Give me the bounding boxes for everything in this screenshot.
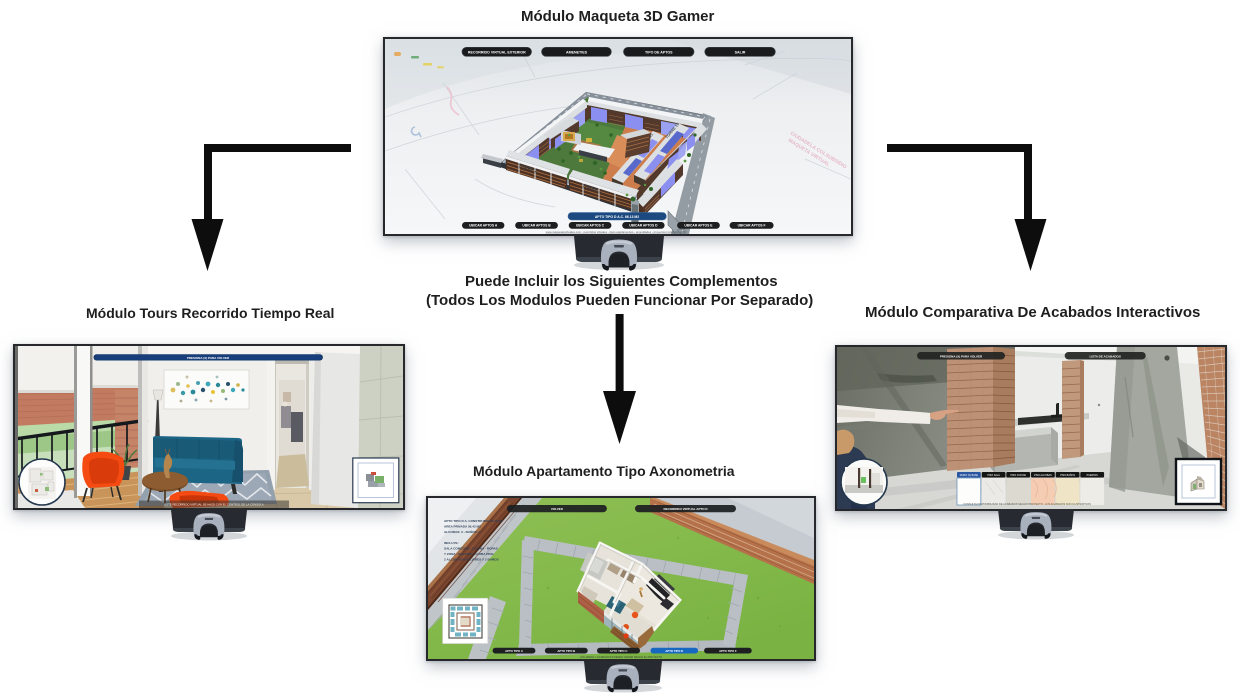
svg-text:www.maquetasvirtuales.com - re: www.maquetasvirtuales.com - recorridos v…: [546, 230, 687, 234]
svg-text:APTO TIPO F: APTO TIPO F: [719, 649, 737, 653]
svg-text:APTO TIPO B: APTO TIPO B: [557, 649, 575, 653]
svg-text:UBICAR APTOS F: UBICAR APTOS F: [738, 224, 766, 228]
svg-text:LISTA DE ACABADOS: LISTA DE ACABADOS: [1090, 354, 1121, 358]
svg-text:2 ALCOBAS AUXILIARES Y 2 BAÑOS: 2 ALCOBAS AUXILIARES Y 2 BAÑOS: [444, 557, 499, 562]
svg-text:INCLUYE:: INCLUYE:: [444, 541, 459, 545]
svg-text:RECORRIDO VIRTUAL APTO D: RECORRIDO VIRTUAL APTO D: [663, 507, 708, 511]
svg-text:APTO TIPO C: APTO TIPO C: [610, 649, 628, 653]
svg-text:Y ZONA - BALCON ALCOBA PPAL: Y ZONA - BALCON ALCOBA PPAL: [444, 552, 494, 556]
svg-text:PRESIONA (X) PARA VOLVER: PRESIONA (X) PARA VOLVER: [187, 356, 230, 360]
svg-text:AMENETIES: AMENETIES: [566, 50, 588, 54]
svg-text:UBICAR APTOS B: UBICAR APTOS B: [522, 224, 551, 228]
svg-text:APTO TIPO D: APTO TIPO D: [665, 649, 683, 653]
svg-text:ALCOBAS: 3 - BAÑOS: 2: ALCOBAS: 3 - BAÑOS: 2: [444, 529, 481, 534]
svg-text:APTO TIPO D A. CONSTRUIDA 66.1: APTO TIPO D A. CONSTRUIDA 66.13 M2: [444, 519, 503, 523]
svg-text:APTO TIPO A: APTO TIPO A: [505, 649, 523, 653]
svg-text:UBICAR APTOS C: UBICAR APTOS C: [576, 224, 605, 228]
svg-text:SALIR: SALIR: [735, 50, 746, 54]
svg-text:SALA COMEDOR - COCINA - ROPAS: SALA COMEDOR - COCINA - ROPAS: [444, 547, 498, 551]
svg-text:APTO TIPO D A.C. 66.13 M2: APTO TIPO D A.C. 66.13 M2: [595, 215, 639, 219]
svg-text:RECORRIDO VIRTUAL EXTERIOR: RECORRIDO VIRTUAL EXTERIOR: [468, 50, 526, 54]
svg-text:UBICAR APTOS A: UBICAR APTOS A: [469, 224, 498, 228]
svg-text:UBICAR APTOS E: UBICAR APTOS E: [684, 224, 713, 228]
svg-text:PRESIONA (X) PARA VOLVER: PRESIONA (X) PARA VOLVER: [940, 354, 983, 358]
svg-text:PISO COCINA: PISO COCINA: [1010, 474, 1026, 477]
svg-text:ESTE RECORRIDO VIRTUAL SE HACE: ESTE RECORRIDO VIRTUAL SE HACE CON EL CO…: [164, 503, 263, 507]
svg-text:LAS AREAS Y ACABADOS PUEDEN VA: LAS AREAS Y ACABADOS PUEDEN VARIAR SEGUN…: [580, 655, 662, 659]
svg-text:VOLVER: VOLVER: [551, 507, 564, 511]
svg-text:TIPO DE APTOS: TIPO DE APTOS: [645, 50, 673, 54]
svg-text:PISO ALCOBAS: PISO ALCOBAS: [1034, 474, 1052, 477]
svg-text:CONSULTA DISPONIBILIDAD DE ACA: CONSULTA DISPONIBILIDAD DE ACABADOS SEGU…: [963, 502, 1091, 506]
svg-text:PUERTAS: PUERTAS: [1087, 474, 1098, 477]
svg-text:AREA PRIVADA 58.42 M2: AREA PRIVADA 58.42 M2: [444, 525, 481, 529]
svg-text:PISO BAÑOS: PISO BAÑOS: [1060, 474, 1075, 477]
svg-text:MURO (X) BASE: MURO (X) BASE: [960, 474, 979, 477]
svg-text:PISO SALA: PISO SALA: [987, 474, 1000, 477]
svg-text:UBICAR APTOS D: UBICAR APTOS D: [629, 224, 658, 228]
